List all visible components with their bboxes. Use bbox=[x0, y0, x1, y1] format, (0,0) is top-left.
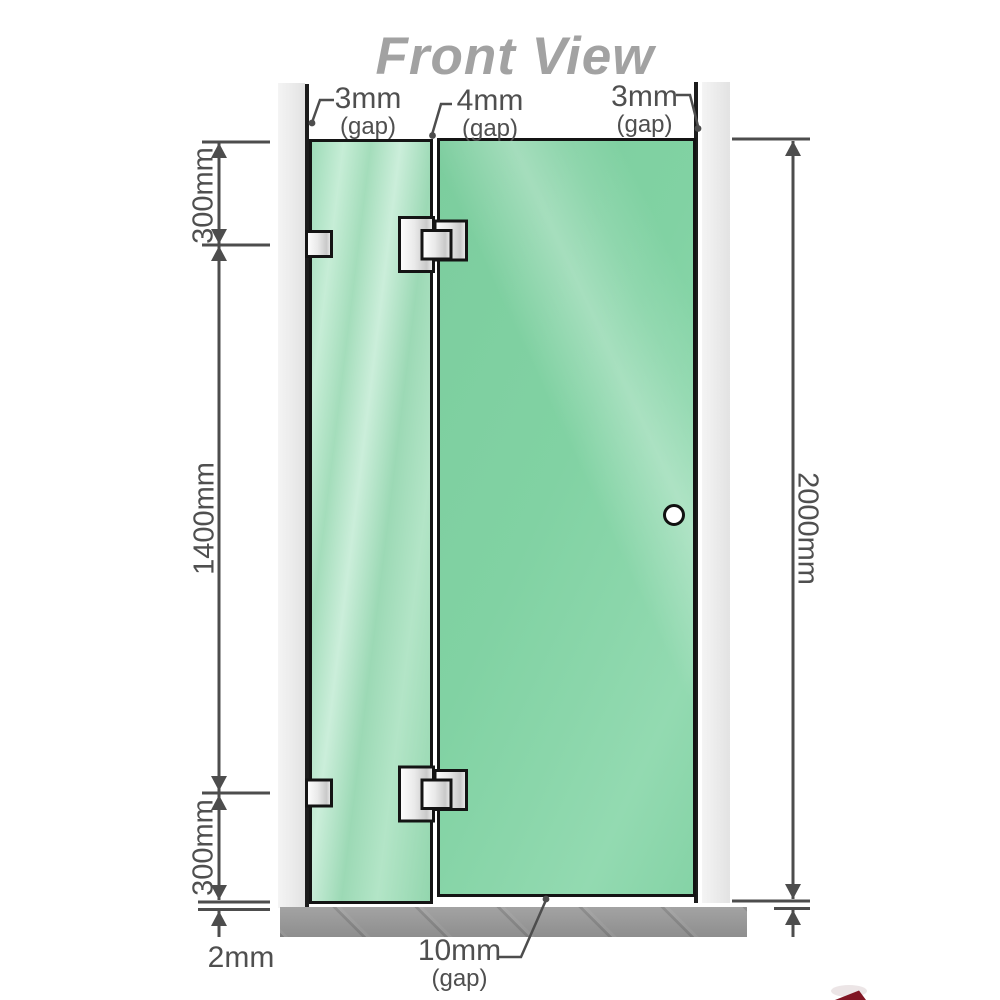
gap-unit: (gap) bbox=[597, 113, 692, 137]
top-hinge bbox=[400, 218, 467, 272]
dimension-2mm-floor-gap: 2mm bbox=[196, 941, 286, 975]
gap-value: 3mm bbox=[597, 82, 692, 112]
gap-leader-lines bbox=[313, 95, 699, 957]
watermark-fragment bbox=[831, 985, 867, 1000]
wall-bracket-top bbox=[307, 232, 332, 257]
front-view-diagram: Front View bbox=[0, 0, 1000, 1000]
gap-value: 3mm bbox=[318, 84, 418, 114]
bottom-hinge bbox=[400, 767, 467, 821]
gap-unit: (gap) bbox=[440, 117, 540, 141]
gap-callout-bottom: 10mm (gap) bbox=[412, 936, 507, 991]
gap-unit: (gap) bbox=[412, 967, 507, 991]
gap-value: 10mm bbox=[412, 936, 507, 966]
gap-callout-top-right: 3mm (gap) bbox=[597, 82, 692, 137]
gap-leader-dots bbox=[309, 120, 702, 903]
gap-callout-top-middle: 4mm (gap) bbox=[440, 86, 540, 141]
dimension-300mm-top: 300mm bbox=[188, 121, 221, 271]
gap-value: 4mm bbox=[440, 86, 540, 116]
gap-unit: (gap) bbox=[318, 115, 418, 139]
dimension-overlay bbox=[0, 0, 1000, 1000]
wall-bracket-bottom bbox=[307, 780, 332, 806]
dimension-300mm-bottom: 300mm bbox=[188, 773, 221, 923]
gap-callout-top-left: 3mm (gap) bbox=[318, 84, 418, 139]
dimension-2000mm-total: 2000mm bbox=[791, 429, 824, 629]
dimension-1400mm: 1400mm bbox=[189, 419, 222, 619]
